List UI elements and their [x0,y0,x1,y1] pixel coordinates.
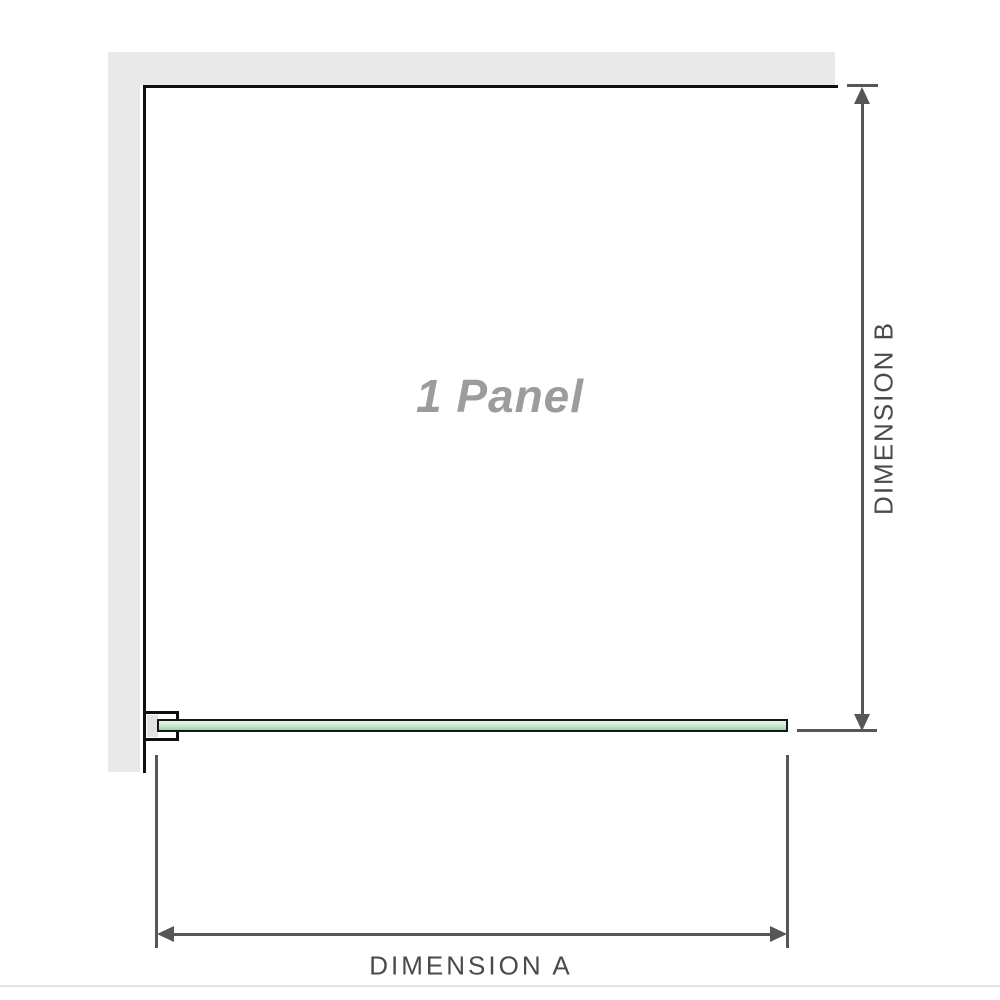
wall-top-bar [108,52,835,85]
panel-dimension-diagram: 1 Panel DIMENSION B DIMENSION A [0,0,1000,1000]
dimension-a-right-extension-line [786,755,789,948]
wall-left-bar [108,52,140,772]
arrow-right-icon [770,926,787,942]
arrow-left-icon [157,926,174,942]
wall-face-line-top [143,85,838,88]
dimension-a-line [170,933,775,936]
dimension-b-label: DIMENSION B [869,321,900,515]
bottom-divider-line [0,985,1000,987]
panel-count-label: 1 Panel [416,369,584,423]
arrow-up-icon [854,87,870,104]
dimension-a-label: DIMENSION A [369,951,572,982]
glass-panel [157,719,788,732]
arrow-down-icon [854,714,870,731]
dimension-b-line [861,92,864,726]
wall-face-line-left [143,85,146,773]
dimension-a-left-extension-line [155,755,158,948]
